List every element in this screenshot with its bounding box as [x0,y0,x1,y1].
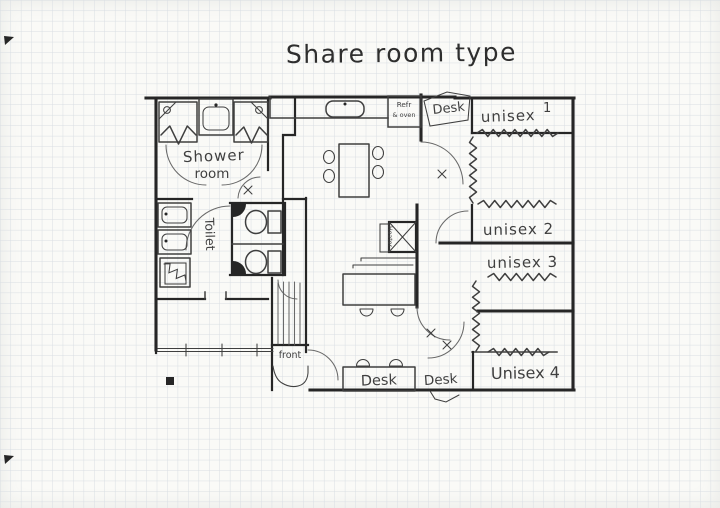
plan-title: Share room type [286,38,517,69]
desk-right-label: Desk [423,371,458,389]
front-label: front [279,350,302,361]
unisex4-label: Unisex 4 [491,363,560,383]
unisex2-label: unisex 2 [483,220,554,239]
unisex1-label: unisex [481,106,536,126]
unisex3-label: unisex 3 [487,253,558,272]
heater-label: Heater [386,226,393,247]
toilet-label: Toilet [202,217,218,251]
shower-room-label-line1: Shower [183,146,245,166]
post-mark [166,377,174,385]
refr-label: Refr [397,100,412,109]
floor-plan-drawing: Share room type [0,0,720,508]
shower-room-label-line2: room [195,166,230,182]
desk-center-label: Desk [361,372,398,389]
grid-background [0,0,720,508]
oven-label: & oven [392,111,415,119]
graph-paper-page: Share room type [0,0,720,508]
unisex1-number: 1 [543,101,551,116]
